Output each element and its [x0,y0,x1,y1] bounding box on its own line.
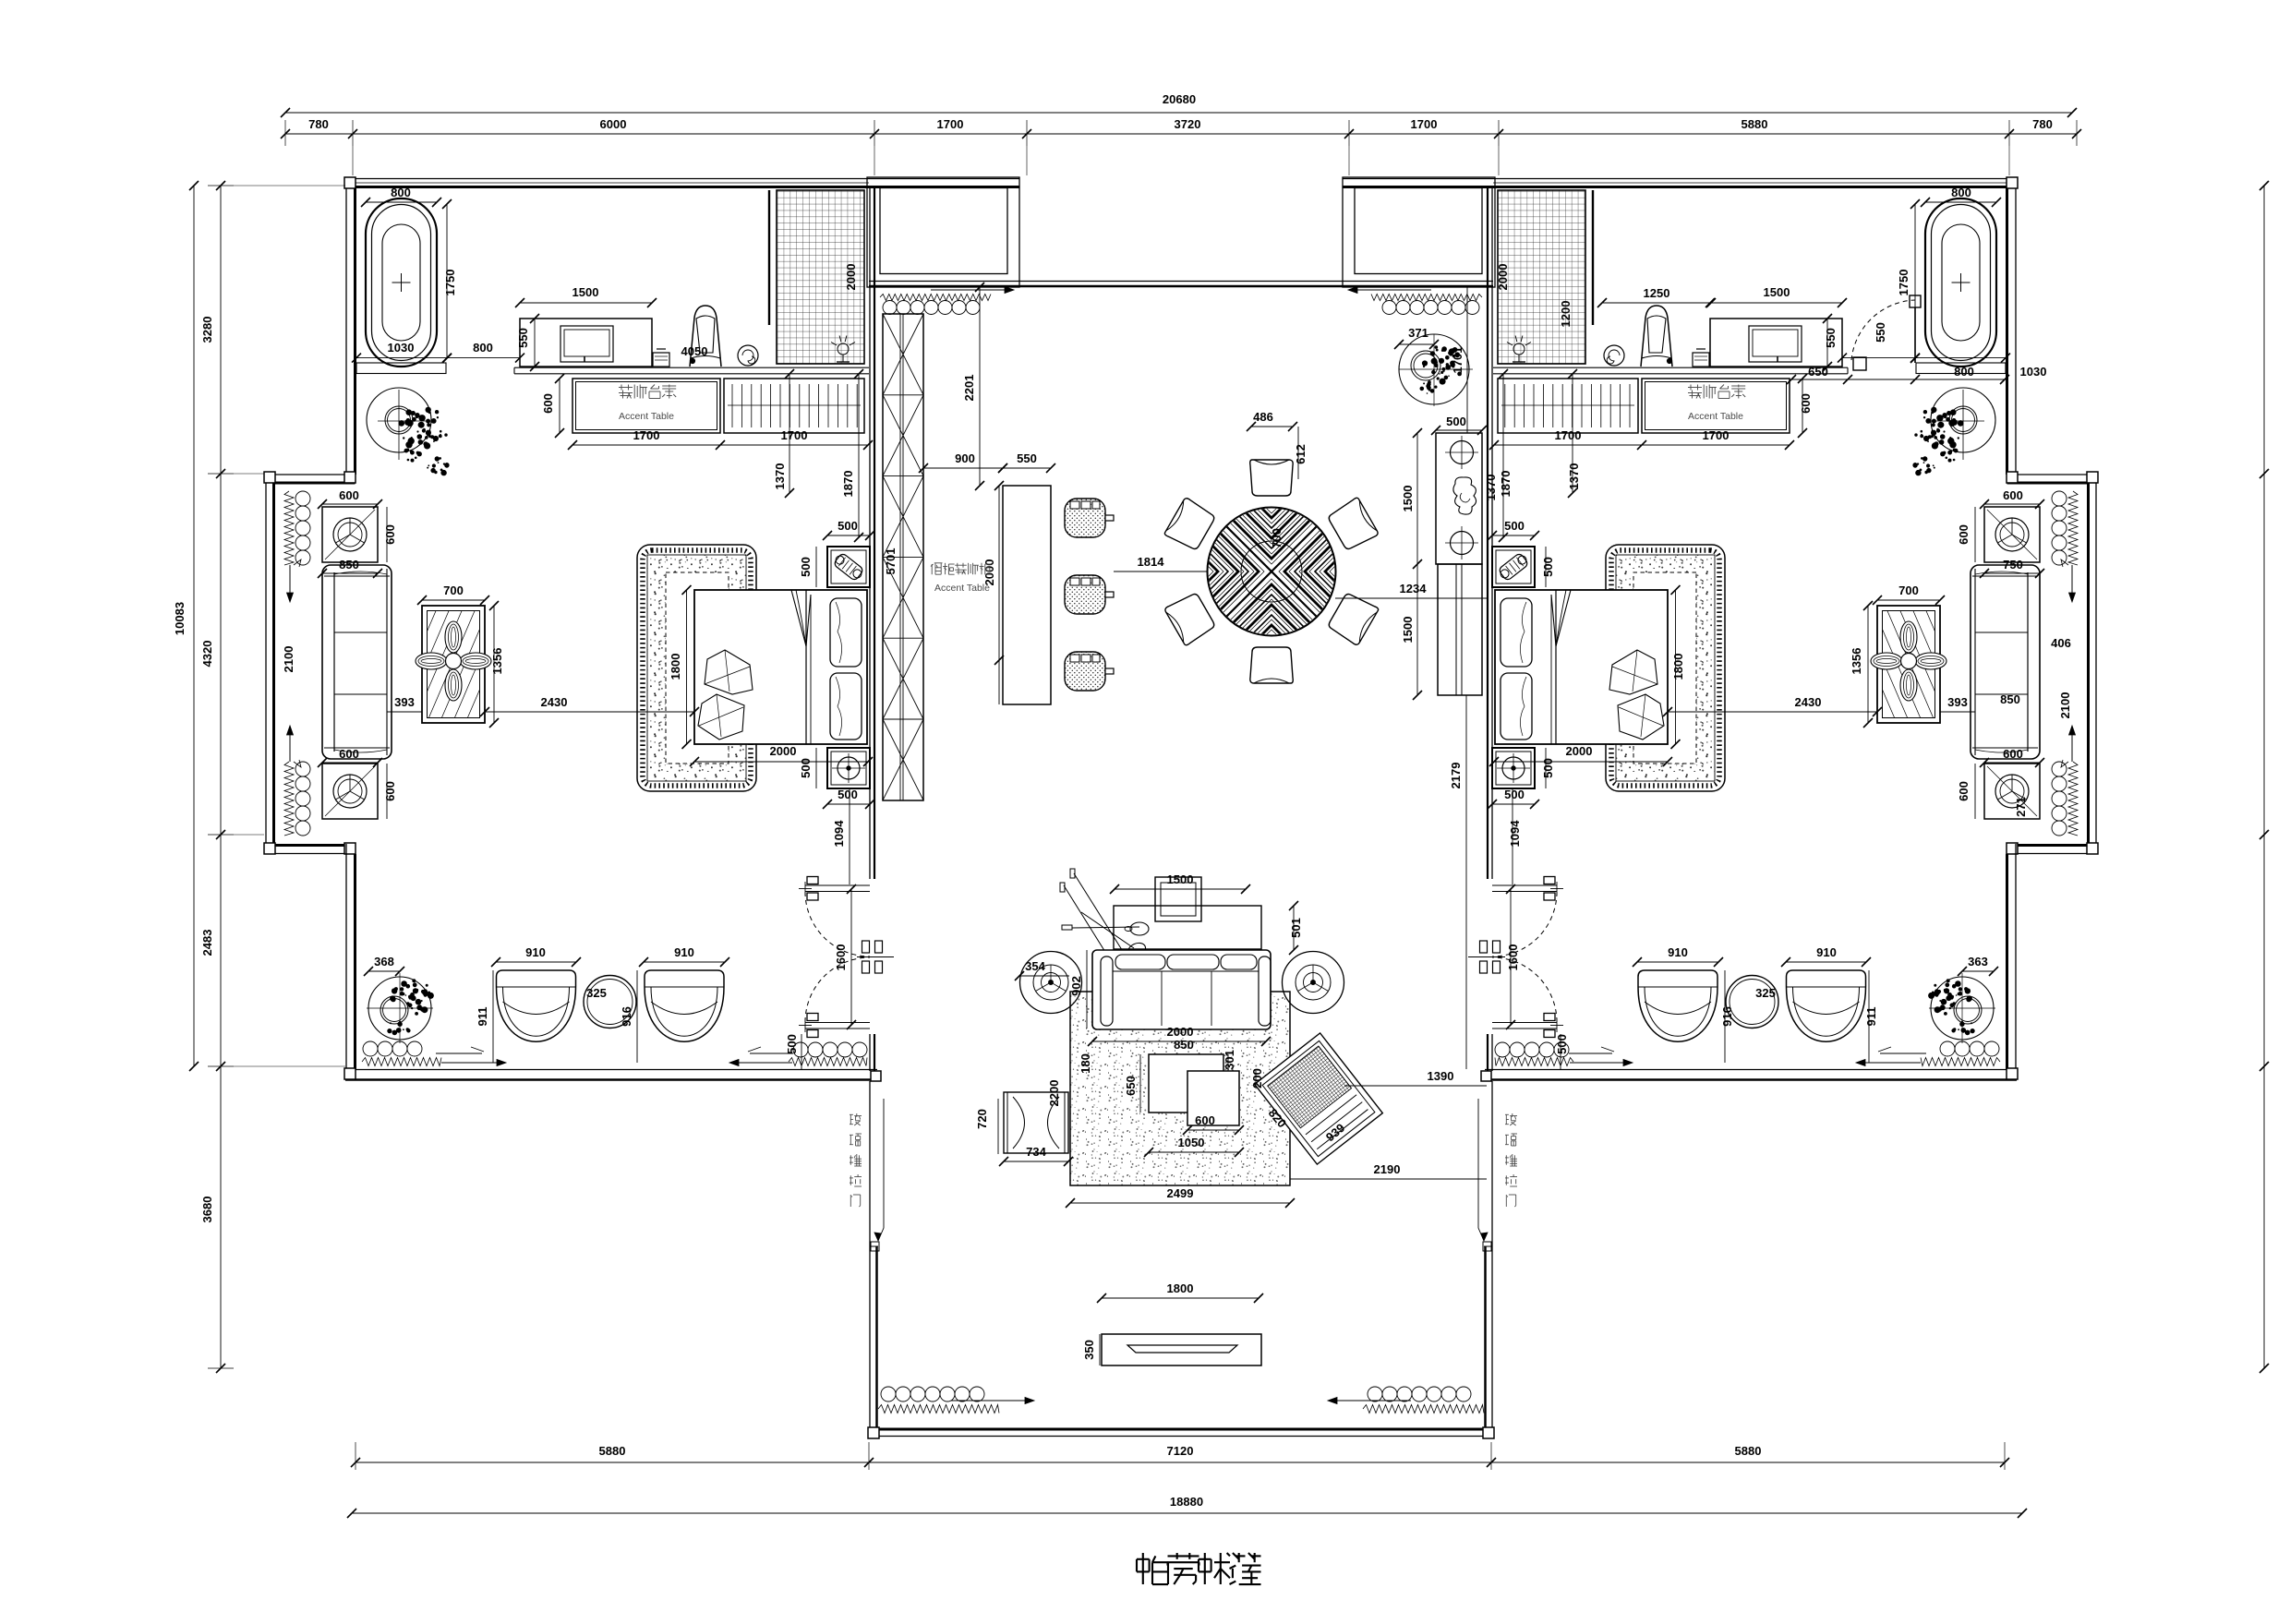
svg-text:5880: 5880 [599,1444,626,1458]
svg-text:600: 600 [339,488,359,502]
svg-text:600: 600 [1957,524,1971,545]
svg-text:1094: 1094 [1508,820,1522,848]
svg-text:1500: 1500 [1764,285,1790,299]
svg-text:301: 301 [1223,1050,1236,1070]
svg-text:500: 500 [799,758,813,778]
svg-text:3280: 3280 [200,317,214,343]
svg-text:501: 501 [1289,918,1303,938]
svg-text:550: 550 [1017,451,1037,465]
svg-text:2000: 2000 [1566,744,1593,758]
svg-text:Accent Table: Accent Table [934,583,990,594]
svg-text:550: 550 [1874,322,1887,343]
svg-text:2430: 2430 [541,695,568,709]
svg-text:700: 700 [443,583,464,597]
svg-text:7120: 7120 [1167,1444,1194,1458]
svg-text:2100: 2100 [282,646,295,673]
svg-text:600: 600 [2003,747,2023,761]
svg-text:500: 500 [838,519,858,533]
svg-text:180: 180 [1079,1053,1092,1074]
svg-text:1800: 1800 [669,654,682,680]
svg-text:916: 916 [620,1006,633,1027]
svg-text:271: 271 [2014,797,2028,817]
svg-text:720: 720 [975,1109,989,1129]
svg-text:325: 325 [586,986,607,1000]
svg-text:2201: 2201 [962,375,976,402]
svg-text:Accent Table: Accent Table [619,411,674,422]
svg-text:600: 600 [339,747,359,761]
svg-text:2100: 2100 [2058,692,2072,719]
svg-text:500: 500 [1555,1034,1569,1054]
svg-text:5880: 5880 [1742,117,1768,131]
svg-text:406: 406 [2051,636,2071,650]
svg-text:5880: 5880 [1735,1444,1762,1458]
svg-text:1356: 1356 [490,648,504,675]
svg-text:700: 700 [1898,583,1919,597]
svg-text:350: 350 [1082,1340,1096,1360]
svg-text:850: 850 [1174,1038,1194,1052]
svg-text:1600: 1600 [1506,944,1520,971]
svg-text:1700: 1700 [937,117,964,131]
svg-text:600: 600 [541,393,555,414]
svg-text:2190: 2190 [1374,1162,1401,1176]
svg-text:4050: 4050 [681,344,708,358]
svg-text:1500: 1500 [572,285,599,299]
svg-text:393: 393 [394,695,415,709]
svg-text:1700: 1700 [1555,428,1582,442]
svg-text:600: 600 [1195,1113,1215,1127]
svg-text:600: 600 [2003,488,2023,502]
svg-text:910: 910 [525,945,546,959]
svg-text:1700: 1700 [1411,117,1438,131]
svg-text:500: 500 [1504,788,1525,801]
svg-text:650: 650 [1808,365,1828,379]
svg-text:902: 902 [1069,976,1083,996]
svg-text:600: 600 [383,524,397,545]
svg-text:393: 393 [1947,695,1968,709]
svg-text:3720: 3720 [1175,117,1201,131]
svg-text:1050: 1050 [1178,1136,1205,1149]
svg-text:850: 850 [339,558,359,571]
svg-text:2200: 2200 [1047,1080,1061,1107]
svg-text:600: 600 [1799,393,1813,414]
svg-text:2000: 2000 [1496,264,1510,291]
svg-text:500: 500 [1541,758,1555,778]
svg-text:500: 500 [838,788,858,801]
svg-text:500: 500 [1541,557,1555,577]
svg-text:500: 500 [785,1034,799,1054]
svg-text:911: 911 [476,1007,489,1027]
svg-text:550: 550 [516,328,530,348]
svg-text:780: 780 [2032,117,2053,131]
svg-text:1370: 1370 [1484,475,1498,501]
svg-text:2179: 2179 [1449,763,1463,789]
svg-text:1390: 1390 [1428,1069,1454,1083]
svg-text:1700: 1700 [1703,428,1730,442]
svg-text:910: 910 [1668,945,1688,959]
svg-text:1700: 1700 [633,428,660,442]
svg-text:1200: 1200 [1559,301,1573,328]
svg-text:1870: 1870 [1499,471,1513,498]
svg-text:1356: 1356 [1850,648,1863,675]
svg-text:1030: 1030 [388,341,415,355]
svg-text:486: 486 [1253,410,1273,424]
svg-text:910: 910 [1816,945,1837,959]
svg-text:850: 850 [2000,692,2020,706]
svg-text:6000: 6000 [600,117,627,131]
svg-text:750: 750 [2003,558,2023,571]
svg-text:650: 650 [1124,1076,1138,1096]
svg-text:368: 368 [374,955,394,968]
svg-text:500: 500 [799,557,813,577]
svg-text:1750: 1750 [1897,270,1910,296]
svg-text:1234: 1234 [1400,582,1428,595]
svg-text:1500: 1500 [1401,486,1415,512]
svg-text:354: 354 [1025,959,1045,973]
svg-text:1030: 1030 [2020,365,2047,379]
svg-text:1370: 1370 [773,463,787,490]
svg-text:1750: 1750 [443,270,457,296]
svg-text:1094: 1094 [832,820,846,848]
svg-text:612: 612 [1294,444,1308,464]
svg-text:2000: 2000 [770,744,797,758]
svg-text:1500: 1500 [1167,872,1194,886]
svg-text:800: 800 [1954,365,1974,379]
svg-text:5701: 5701 [884,548,898,575]
svg-text:500: 500 [1446,415,1466,428]
svg-text:700: 700 [1270,528,1284,548]
svg-text:910: 910 [674,945,694,959]
svg-text:1250: 1250 [1644,286,1670,300]
svg-text:363: 363 [1968,955,1988,968]
svg-text:500: 500 [1504,519,1525,533]
svg-text:200: 200 [1250,1068,1264,1089]
svg-text:780: 780 [308,117,329,131]
svg-text:18880: 18880 [1170,1495,1203,1509]
svg-text:2000: 2000 [844,264,858,291]
svg-text:1701: 1701 [1451,347,1464,374]
svg-text:371: 371 [1408,326,1428,340]
svg-text:911: 911 [1864,1007,1878,1027]
svg-text:4320: 4320 [200,641,214,668]
svg-text:20680: 20680 [1163,92,1196,106]
svg-text:800: 800 [1951,186,1971,199]
svg-text:800: 800 [391,186,411,199]
svg-text:Accent Table: Accent Table [1688,411,1743,422]
svg-text:10083: 10083 [173,602,187,635]
svg-text:900: 900 [955,451,975,465]
svg-text:1800: 1800 [1167,1281,1194,1295]
svg-text:1814: 1814 [1138,555,1165,569]
svg-text:600: 600 [383,781,397,801]
svg-text:1800: 1800 [1671,654,1685,680]
svg-text:2499: 2499 [1167,1186,1194,1200]
svg-text:916: 916 [1720,1006,1734,1027]
svg-text:325: 325 [1755,986,1776,1000]
svg-text:550: 550 [1824,328,1838,348]
svg-text:2000: 2000 [1167,1025,1194,1039]
svg-text:600: 600 [1957,781,1971,801]
svg-text:1870: 1870 [841,471,855,498]
svg-text:1500: 1500 [1401,617,1415,644]
svg-text:1700: 1700 [781,428,808,442]
svg-text:2430: 2430 [1795,695,1822,709]
svg-text:800: 800 [473,341,493,355]
svg-text:734: 734 [1026,1145,1046,1159]
svg-text:1600: 1600 [834,944,848,971]
svg-text:3680: 3680 [200,1197,214,1223]
svg-text:1370: 1370 [1567,463,1581,490]
svg-text:2483: 2483 [200,930,214,956]
